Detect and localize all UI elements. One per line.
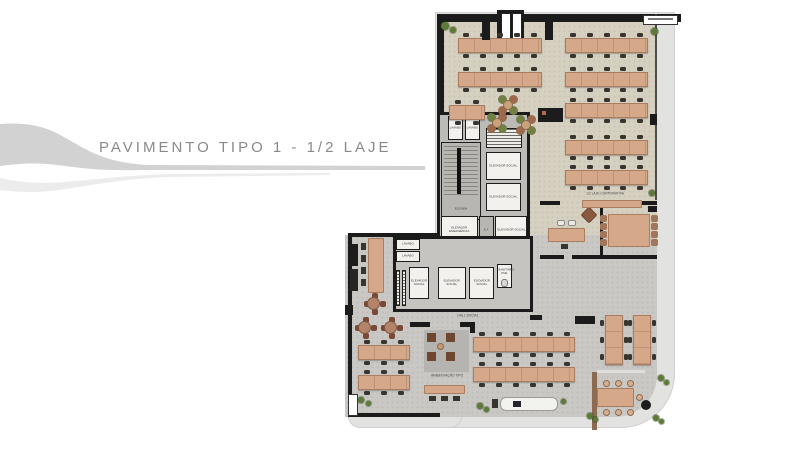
chair: [651, 231, 658, 238]
wall-label-box: [643, 15, 678, 25]
chair: [587, 54, 593, 58]
chair: [587, 67, 593, 71]
chair: [364, 370, 370, 374]
room-sanitario-pne: SANITÁRIO PNE: [497, 264, 512, 288]
window-mullion: [650, 114, 657, 125]
stool: [361, 243, 366, 250]
chair: [620, 186, 626, 190]
chair: [600, 354, 604, 360]
chair: [513, 362, 519, 366]
room-lavabo: LAVABO: [396, 251, 420, 262]
plant: [358, 397, 364, 403]
meeting-table: [608, 214, 650, 247]
annotation-corporativa: 1/2 LAJE CORPORATIVA: [586, 192, 624, 195]
chair: [497, 88, 503, 92]
hall-social-label: HALL SOCIAL: [457, 314, 478, 317]
stool: [615, 409, 622, 416]
chair: [480, 67, 486, 71]
lounge-table: [446, 333, 455, 342]
chair: [380, 301, 386, 307]
chair: [547, 383, 553, 387]
chair: [604, 98, 610, 102]
wall-bottom: [348, 413, 440, 417]
chair: [455, 121, 461, 125]
chair: [600, 223, 607, 230]
plant: [450, 27, 456, 33]
chair: [604, 54, 610, 58]
chair: [600, 239, 607, 246]
chair: [620, 156, 626, 160]
chair: [398, 391, 404, 395]
chair: [628, 320, 632, 326]
plant: [664, 380, 669, 385]
chair: [620, 67, 626, 71]
label-line: [648, 18, 673, 20]
shaft-duct: [396, 270, 400, 306]
chair: [547, 362, 553, 366]
chair: [600, 320, 604, 326]
plant: [484, 407, 489, 412]
desk-bench: [565, 103, 648, 118]
chair: [570, 135, 576, 139]
chair: [530, 353, 536, 357]
wall-exec: [640, 201, 657, 205]
chair: [637, 119, 643, 123]
chair: [479, 362, 485, 366]
chair: [371, 325, 377, 331]
chair: [587, 186, 593, 190]
chair: [531, 88, 537, 92]
chair: [570, 165, 576, 169]
stool: [441, 396, 448, 401]
chair: [570, 98, 576, 102]
wall-stub: [482, 22, 490, 40]
chair: [637, 88, 643, 92]
wall-hall: [530, 315, 542, 320]
glass-partition: [597, 370, 645, 373]
chair: [564, 362, 570, 366]
shelf-unit: [350, 244, 358, 266]
clover-table: [503, 100, 513, 110]
chair: [514, 54, 520, 58]
chair: [637, 54, 643, 58]
plant: [659, 419, 664, 424]
chair: [652, 354, 656, 360]
chair: [455, 100, 461, 104]
chair: [479, 332, 485, 336]
chair: [651, 215, 658, 222]
core-lower: LAVABO LAVABO ELEVADOR SOCIAL ELEVADOR S…: [393, 236, 533, 312]
desk-bench: [633, 315, 651, 365]
chair: [620, 98, 626, 102]
chair: [381, 361, 387, 365]
chair: [463, 33, 469, 37]
chair: [587, 135, 593, 139]
floor-plan: LAVABO LAVABO ESCADA ELEVADOR SOCIAL ELE…: [337, 10, 689, 432]
chair: [620, 135, 626, 139]
plant: [477, 403, 483, 409]
chair: [514, 33, 520, 37]
chair: [587, 156, 593, 160]
chair: [600, 215, 607, 222]
annotation-ambientacao: AMBIENTAÇÃO TIPO: [431, 374, 463, 377]
chair: [497, 54, 503, 58]
clover-table: [521, 120, 531, 130]
chair: [398, 340, 404, 344]
chair: [530, 332, 536, 336]
chair: [600, 231, 607, 238]
door-marker: [345, 305, 353, 315]
chair: [480, 54, 486, 58]
cafe-table: [367, 297, 380, 310]
room-elevador-social: ELEVADOR SOCIAL: [469, 267, 494, 299]
plant: [658, 375, 664, 381]
shaft-duct: [402, 270, 406, 306]
chair: [587, 165, 593, 169]
stool: [603, 409, 610, 416]
chair: [479, 353, 485, 357]
chair: [513, 383, 519, 387]
chair: [398, 361, 404, 365]
chair: [604, 119, 610, 123]
chair: [496, 383, 502, 387]
chair: [604, 33, 610, 37]
desk-bench: [565, 140, 648, 155]
chair: [547, 353, 553, 357]
chair: [628, 337, 632, 343]
chair: [463, 54, 469, 58]
stool: [361, 267, 366, 274]
chair: [628, 354, 632, 360]
wall-hall: [470, 323, 475, 333]
chair: [514, 67, 520, 71]
storage-cabinet: [575, 316, 595, 324]
chair: [637, 165, 643, 169]
chair: [564, 353, 570, 357]
room-elevador-social: ELEVADOR SOCIAL: [486, 152, 521, 180]
stool: [627, 380, 634, 387]
desk-bench: [358, 345, 410, 360]
chair: [570, 54, 576, 58]
floorplan-page: { "title": "PAVIMENTO TIPO 1 - 1/2 LAJE"…: [0, 0, 800, 450]
chair: [604, 186, 610, 190]
room-escada: ESCADA: [441, 142, 481, 220]
guest-chair: [568, 220, 576, 226]
chair: [600, 337, 604, 343]
stool: [429, 396, 436, 401]
desk-bench: [358, 375, 410, 390]
chair: [651, 223, 658, 230]
chair: [381, 391, 387, 395]
chair: [496, 353, 502, 357]
chair: [479, 383, 485, 387]
chair: [463, 88, 469, 92]
cafe-table: [384, 321, 397, 334]
chair: [513, 332, 519, 336]
chair: [570, 33, 576, 37]
room-elevador-social: ELEVADOR SOCIAL: [409, 267, 429, 299]
chair: [492, 399, 498, 408]
lounge-table: [427, 333, 436, 342]
stair-treads: [444, 146, 478, 196]
chair: [547, 332, 553, 336]
chair: [480, 88, 486, 92]
chair: [637, 67, 643, 71]
stool: [361, 255, 366, 262]
chair: [564, 332, 570, 336]
chair: [652, 320, 656, 326]
wall-exec: [540, 201, 560, 205]
chair: [587, 119, 593, 123]
wall-right-thin: [655, 14, 657, 200]
chair: [637, 186, 643, 190]
chair: [604, 156, 610, 160]
chair: [496, 332, 502, 336]
chair: [620, 88, 626, 92]
stool: [615, 380, 622, 387]
chair: [637, 98, 643, 102]
chair: [530, 383, 536, 387]
wall-exec-bottom: [572, 255, 657, 259]
desk-bench: [473, 337, 575, 352]
chair: [587, 33, 593, 37]
plant: [593, 417, 598, 422]
chair: [381, 340, 387, 344]
chair: [381, 370, 387, 374]
chair: [651, 239, 658, 246]
desk-bench: [458, 38, 542, 53]
chair: [620, 165, 626, 169]
lounge-table: [427, 352, 436, 361]
stool: [453, 396, 460, 401]
plant: [561, 399, 566, 404]
clover-table: [492, 118, 502, 128]
chair: [604, 165, 610, 169]
window-mullion: [648, 206, 657, 212]
plant: [649, 190, 655, 196]
chair: [531, 67, 537, 71]
coffee-counter: [368, 238, 384, 293]
chair: [497, 33, 503, 37]
chair: [513, 353, 519, 357]
chair: [364, 361, 370, 365]
cafe-table: [358, 321, 371, 334]
meeting-table: [597, 388, 634, 407]
lounge-table: [446, 352, 455, 361]
chair: [473, 100, 479, 104]
plant: [441, 22, 449, 30]
wall-hall: [410, 322, 430, 327]
chair: [604, 135, 610, 139]
chair: [570, 67, 576, 71]
sideboard: [424, 385, 465, 394]
chair: [637, 135, 643, 139]
desk-bench: [473, 367, 575, 382]
credenza: [582, 200, 642, 208]
guest-chair: [557, 220, 565, 226]
chair: [587, 98, 593, 102]
chair: [570, 88, 576, 92]
chair: [531, 54, 537, 58]
desk-bench: [565, 170, 648, 185]
reception-desk: [500, 397, 558, 411]
lounge-table: [437, 343, 444, 350]
chair: [530, 362, 536, 366]
desk-bench: [565, 72, 648, 87]
stool: [636, 394, 643, 401]
decor-item: [542, 111, 546, 115]
exec-desk: [548, 228, 585, 242]
chair: [497, 67, 503, 71]
chair: [570, 119, 576, 123]
entry-label-box: [348, 394, 358, 416]
chair: [637, 156, 643, 160]
stool: [627, 409, 634, 416]
chair: [531, 33, 537, 37]
room-lavabo: LAVABO: [396, 239, 420, 250]
chair: [620, 54, 626, 58]
chair: [564, 383, 570, 387]
side-table: [641, 400, 651, 410]
chair: [570, 156, 576, 160]
chair: [463, 67, 469, 71]
chair: [637, 33, 643, 37]
plant: [366, 401, 371, 406]
stair-rail: [457, 148, 461, 194]
chair: [604, 88, 610, 92]
chair: [604, 67, 610, 71]
chair: [587, 88, 593, 92]
chair: [397, 325, 403, 331]
chair: [620, 33, 626, 37]
plant: [651, 28, 658, 35]
room-elevador-social: ELEVADOR SOCIAL: [486, 183, 521, 211]
desk-bench: [605, 315, 623, 365]
desk-bench: [458, 72, 542, 87]
chair: [364, 391, 370, 395]
chair: [570, 186, 576, 190]
chair: [561, 244, 568, 249]
wall-stub: [545, 22, 553, 40]
desk-bench: [449, 105, 485, 120]
chair: [652, 337, 656, 343]
desk-bench: [565, 38, 648, 53]
laptop: [513, 401, 521, 407]
room-elevador-social: ELEVADOR SOCIAL: [438, 267, 466, 299]
chair: [620, 119, 626, 123]
chair: [398, 370, 404, 374]
chair: [496, 362, 502, 366]
chair: [364, 340, 370, 344]
stool: [361, 279, 366, 286]
stool: [603, 380, 610, 387]
toilet-fixture: [501, 279, 508, 287]
wall-exec-bottom: [540, 255, 564, 259]
chair: [473, 121, 479, 125]
shelf-unit: [350, 269, 358, 291]
chair: [514, 88, 520, 92]
